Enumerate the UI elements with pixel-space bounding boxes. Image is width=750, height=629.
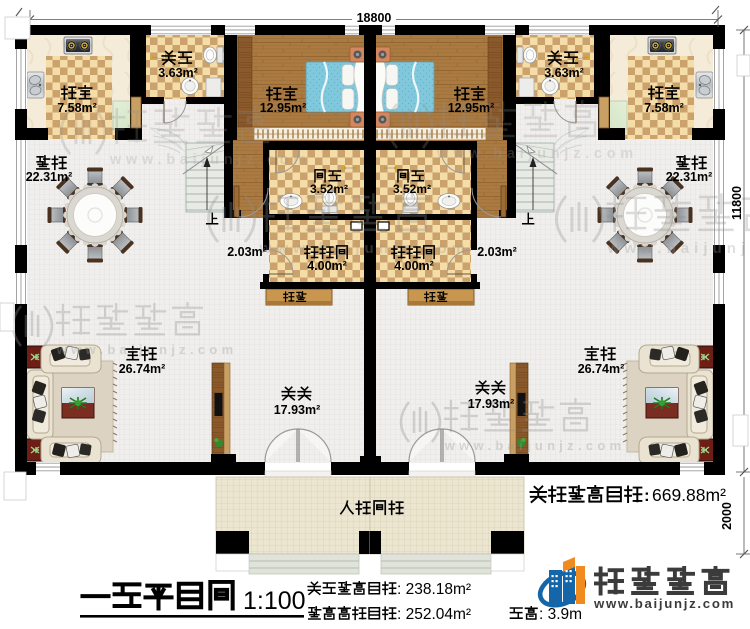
svg-text:7.58m²: 7.58m² [57, 101, 97, 115]
svg-text:www.baijunjz.com: www.baijunjz.com [444, 438, 626, 453]
svg-text:3.52m²: 3.52m² [310, 182, 348, 196]
svg-text:4.00m²: 4.00m² [394, 259, 434, 273]
svg-text:www.baijunjz.com: www.baijunjz.com [607, 240, 750, 257]
svg-text:2.03m²: 2.03m² [477, 245, 517, 259]
svg-text:22.31m²: 22.31m² [666, 170, 713, 184]
svg-text:www.baijunjz.com: www.baijunjz.com [436, 146, 638, 162]
svg-text:www.baijunjz.com: www.baijunjz.com [259, 240, 470, 257]
svg-text::: : [644, 486, 650, 505]
svg-text:3.52m²: 3.52m² [393, 182, 431, 196]
svg-text:4.00m²: 4.00m² [307, 259, 347, 273]
svg-text:22.31m²: 22.31m² [26, 170, 73, 184]
svg-text:18800: 18800 [357, 11, 392, 25]
svg-text:17.93m²: 17.93m² [468, 397, 515, 411]
svg-text:: 252.04m²: : 252.04m² [397, 606, 471, 623]
svg-text:1:100: 1:100 [243, 587, 306, 615]
svg-text:: 238.18m²: : 238.18m² [397, 581, 471, 598]
svg-text:7.58m²: 7.58m² [644, 101, 684, 115]
svg-text:: 3.9m: : 3.9m [539, 606, 582, 623]
svg-text:3.63m²: 3.63m² [158, 66, 198, 80]
svg-text:www.baijunjz.com: www.baijunjz.com [109, 152, 311, 168]
svg-text:2.03m²: 2.03m² [227, 245, 267, 259]
svg-text:2000: 2000 [720, 502, 734, 530]
svg-text:26.74m²: 26.74m² [578, 362, 625, 376]
svg-text:12.95m²: 12.95m² [260, 101, 307, 115]
svg-text:17.93m²: 17.93m² [274, 403, 321, 417]
svg-text:669.88m²: 669.88m² [652, 485, 726, 505]
svg-text:26.74m²: 26.74m² [119, 362, 166, 376]
svg-text:www.baijunjz.com: www.baijunjz.com [593, 596, 735, 611]
svg-text:11800: 11800 [730, 186, 744, 220]
svg-text:3.63m²: 3.63m² [544, 66, 584, 80]
svg-text:12.95m²: 12.95m² [448, 101, 495, 115]
